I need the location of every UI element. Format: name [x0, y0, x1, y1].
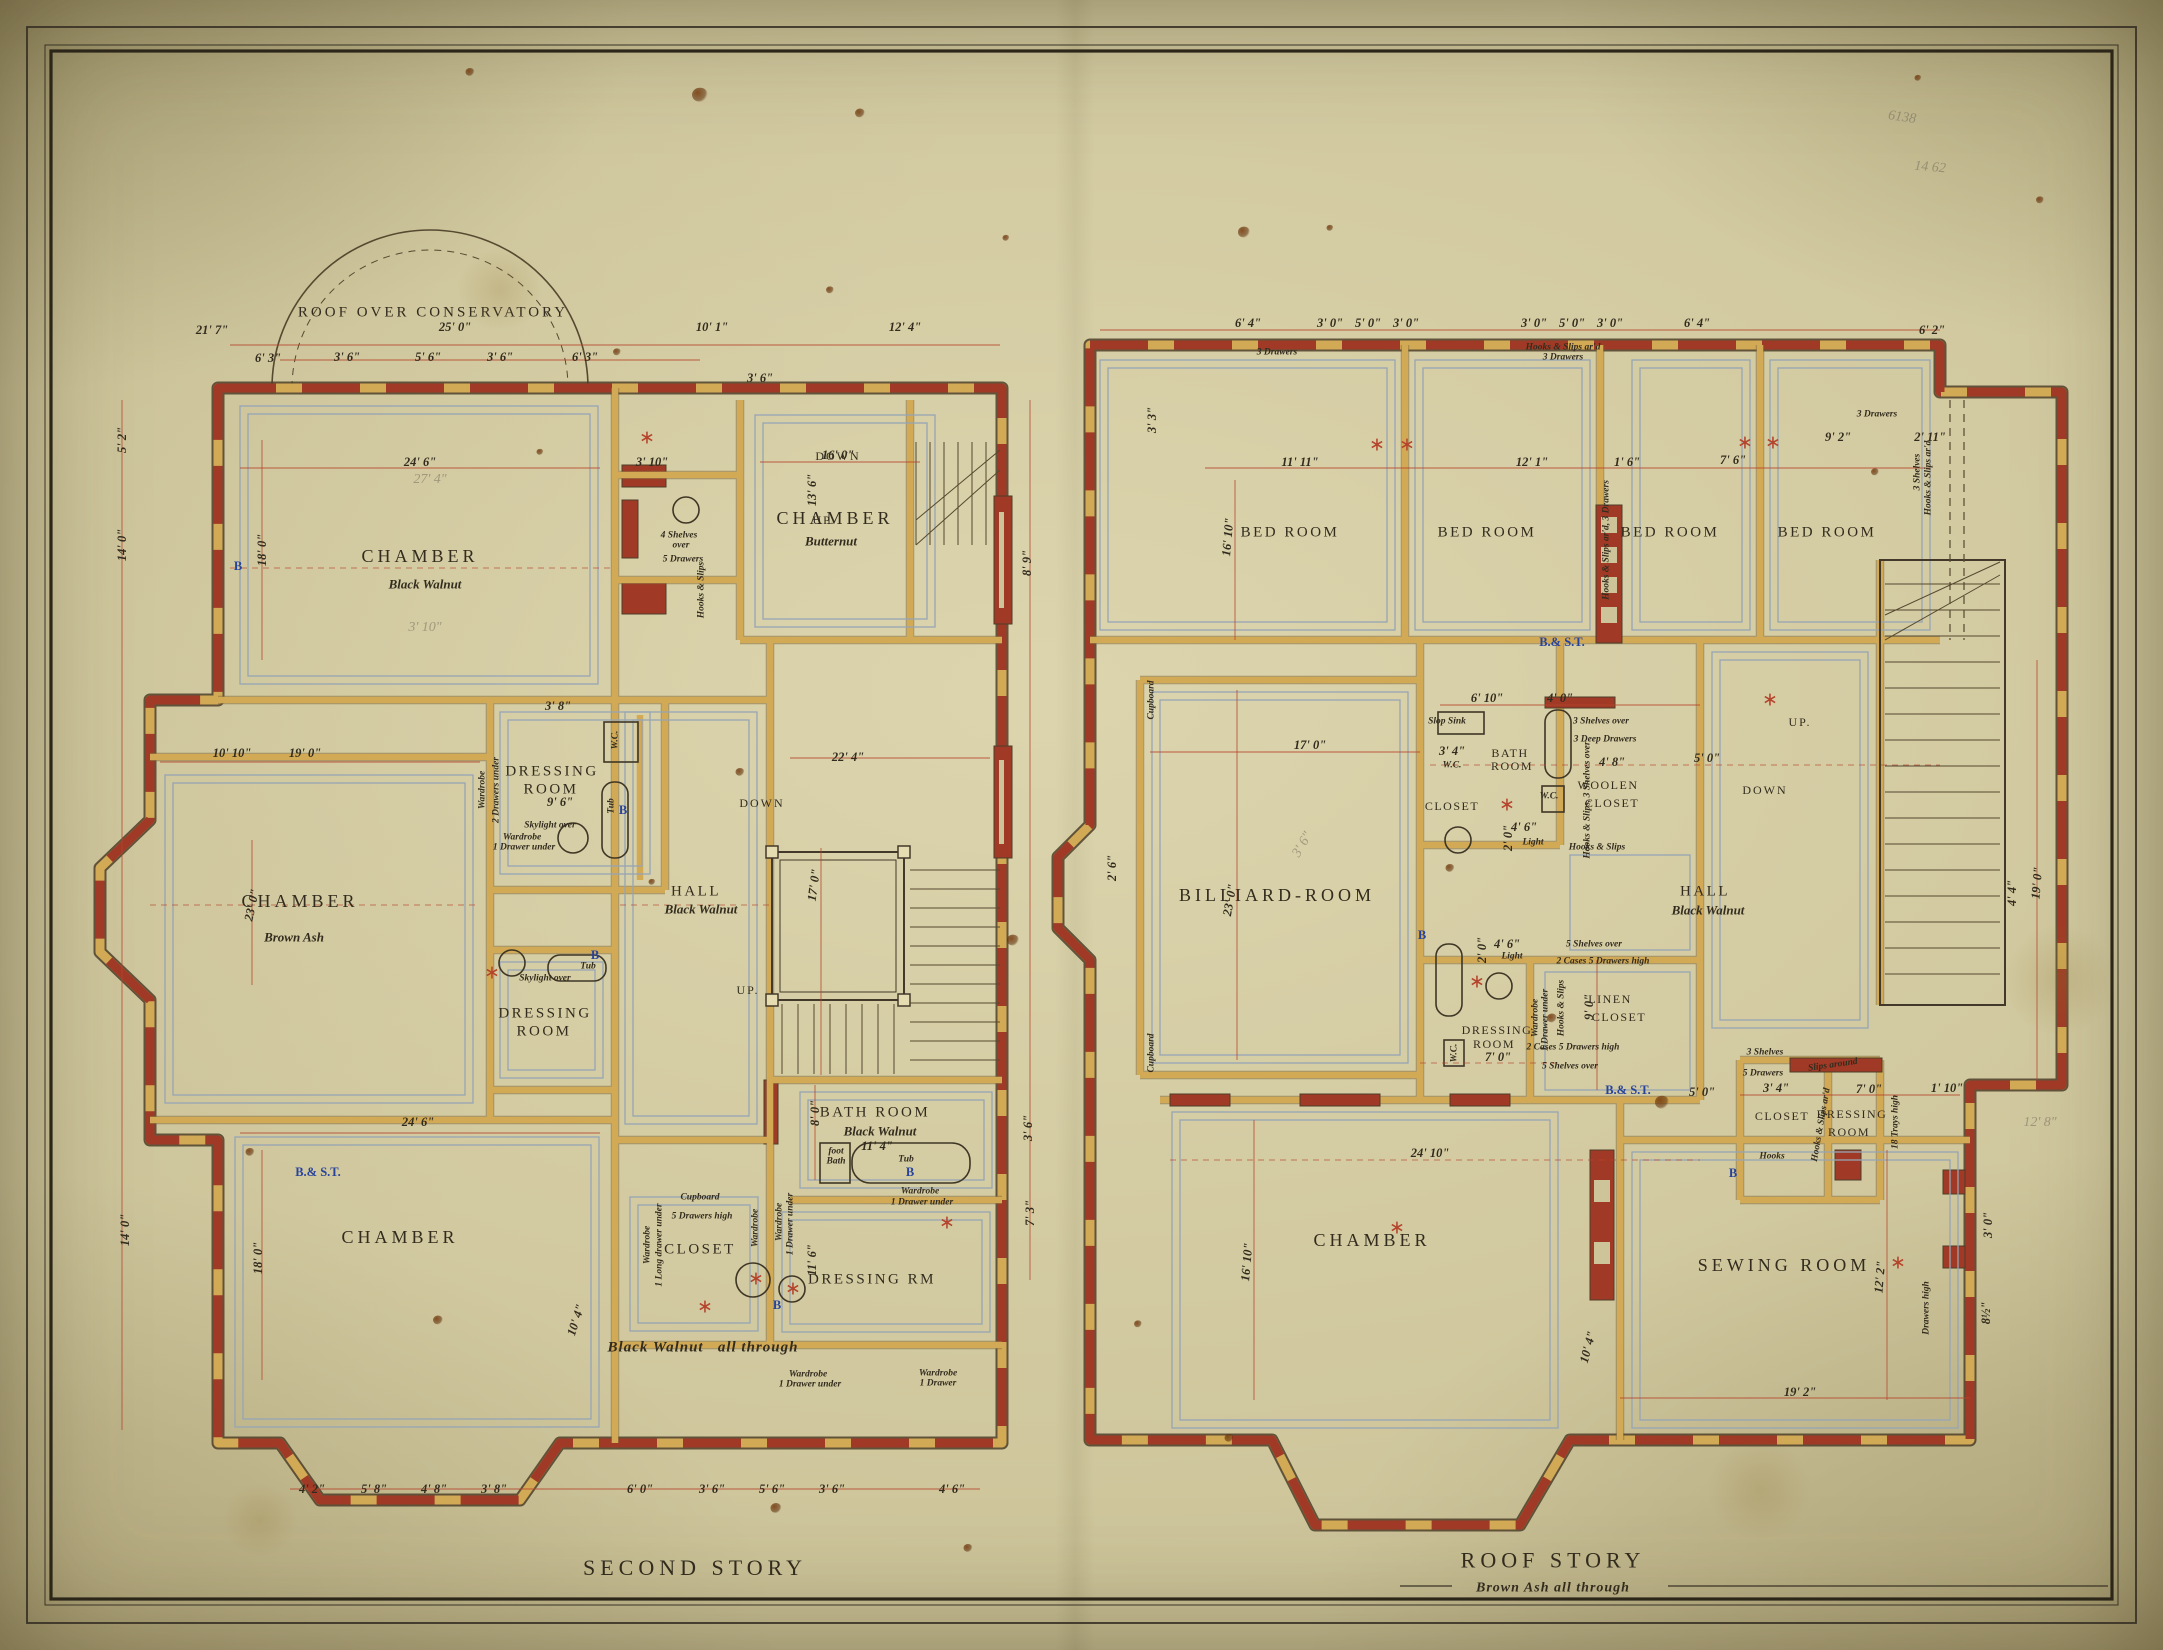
- interior-partitions: [1090, 345, 1970, 1440]
- ink-stain: [1238, 227, 1250, 238]
- ink-stain: [1225, 1434, 1234, 1442]
- bath-fixtures: [499, 497, 970, 1302]
- ink-stain: [2000, 926, 2120, 1034]
- second-story-plan: [100, 230, 1030, 1500]
- roof-story-plan: [1058, 330, 2062, 1525]
- back-staircase: [916, 442, 1000, 545]
- ink-stain: [855, 109, 865, 118]
- ink-stain: [771, 1503, 782, 1513]
- ink-stain: [433, 1316, 443, 1325]
- ink-stain: [220, 1484, 300, 1556]
- ink-stain: [246, 1148, 255, 1156]
- room-inner-lines: [165, 406, 992, 1427]
- ink-stain: [736, 768, 745, 776]
- dimension-lines: [1100, 330, 2037, 1400]
- ink-stain: [1547, 1014, 1557, 1023]
- room-inner-lines: [1100, 360, 1958, 1428]
- ink-stain: [1446, 864, 1455, 872]
- staircase: [1880, 400, 2005, 1005]
- drawing-sheet: .bd1{fill:none;stroke:#3a3326;stroke-wid…: [0, 0, 2163, 1650]
- conservatory-roof-arc: [272, 230, 588, 388]
- chimneys: [622, 465, 1012, 1144]
- perimeter-walls: [1058, 345, 2062, 1525]
- caption-roof-story-sub: Brown Ash all through: [1461, 1581, 1646, 1597]
- caption-second-story: SECOND STORY: [583, 1555, 807, 1581]
- ink-stain: [1705, 1441, 1815, 1540]
- caption-roof-story-text: ROOF STORY: [1461, 1548, 1646, 1573]
- dimension-lines: [122, 345, 1030, 1489]
- red-wall-details: [1170, 505, 1965, 1300]
- caption-roof-story: ROOF STORY Brown Ash all through: [1461, 1548, 1646, 1597]
- ink-stain: [1655, 1096, 1669, 1109]
- ink-stain: [964, 1544, 973, 1552]
- ink-stain: [466, 68, 475, 76]
- interior-partitions: [150, 388, 1002, 1443]
- ink-stain: [455, 250, 545, 331]
- main-staircase: [766, 846, 1000, 1074]
- ink-stain: [1007, 935, 1019, 946]
- caption-second-story-text: SECOND STORY: [583, 1555, 807, 1580]
- plan-linework: .bd1{fill:none;stroke:#3a3326;stroke-wid…: [0, 0, 2163, 1650]
